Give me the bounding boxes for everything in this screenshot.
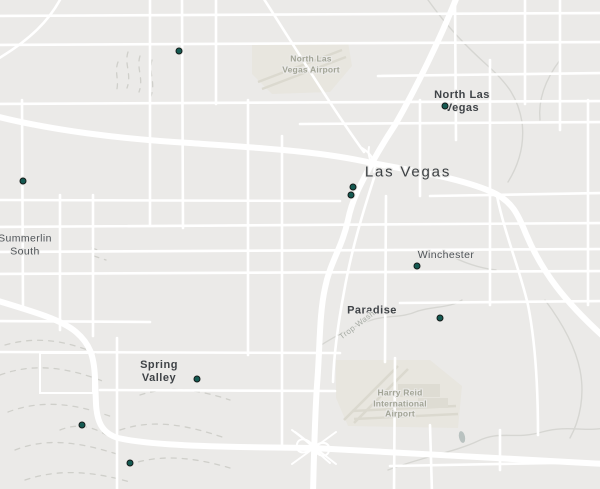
map-marker-8[interactable] (194, 376, 201, 383)
map-marker-3[interactable] (20, 178, 27, 185)
map-marker-5[interactable] (348, 192, 355, 199)
map-marker-9[interactable] (79, 422, 86, 429)
north-las-vegas-airport-area (252, 42, 352, 94)
boundary-rect (40, 353, 93, 393)
terrain-marks (0, 52, 230, 482)
map-marker-10[interactable] (127, 460, 134, 467)
map-marker-1[interactable] (176, 48, 183, 55)
map-marker-4[interactable] (350, 184, 357, 191)
map-marker-6[interactable] (414, 263, 421, 270)
map-base-layer (0, 0, 600, 489)
map-marker-2[interactable] (442, 103, 449, 110)
harry-reid-airport-area (336, 360, 462, 428)
pond (458, 431, 466, 444)
map-marker-7[interactable] (437, 315, 444, 322)
map-canvas[interactable]: Las VegasNorth LasVegasSummerlinSouthWin… (0, 0, 600, 489)
